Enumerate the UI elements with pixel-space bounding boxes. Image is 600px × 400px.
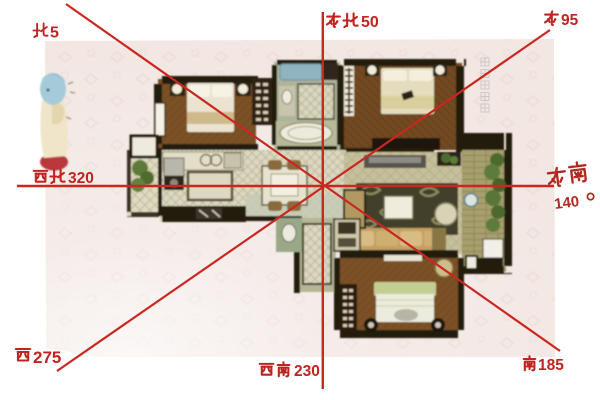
svg-text:185: 185: [538, 357, 564, 374]
svg-text:95: 95: [561, 12, 579, 29]
svg-text:5: 5: [50, 25, 59, 42]
svg-text:50: 50: [361, 14, 379, 31]
svg-text:230: 230: [294, 363, 320, 380]
svg-text:140: 140: [553, 193, 580, 213]
svg-text:275: 275: [33, 348, 61, 367]
svg-text:320: 320: [68, 170, 94, 187]
